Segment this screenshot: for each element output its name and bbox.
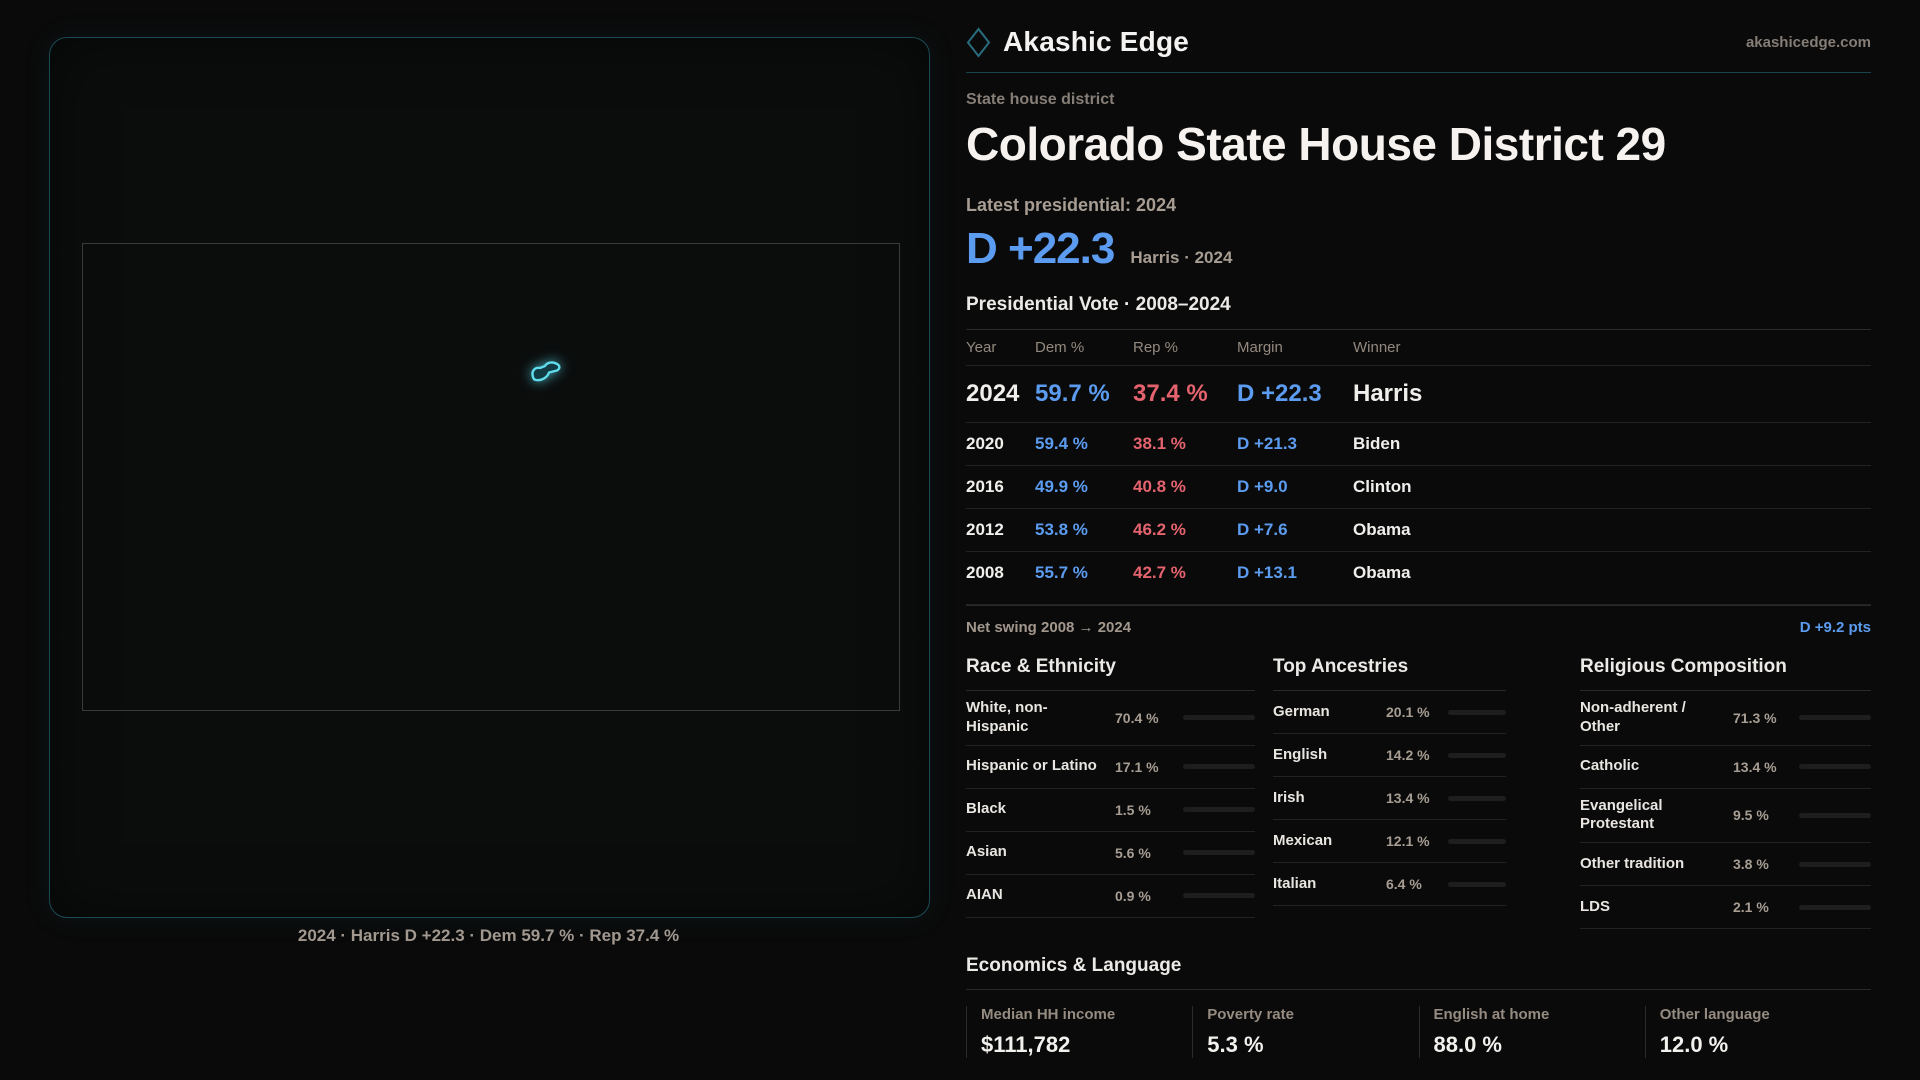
district-shape-icon	[528, 358, 568, 388]
demographic-row: Irish 13.4 %	[1273, 777, 1506, 820]
demographic-value: 70.4 %	[1115, 710, 1175, 726]
brand-name: Akashic Edge	[1003, 26, 1189, 58]
demographic-value: 17.1 %	[1115, 759, 1175, 775]
vote-rep: 40.8 %	[1133, 477, 1237, 497]
economics-title: Economics & Language	[966, 955, 1871, 990]
demographic-value: 12.1 %	[1386, 833, 1440, 849]
demographics-section: Race & Ethnicity White, non-Hispanic 70.…	[966, 656, 1871, 929]
vote-table-title: Presidential Vote · 2008–2024	[966, 294, 1871, 316]
demographic-value: 2.1 %	[1733, 899, 1791, 915]
stat-value: 5.3 %	[1207, 1032, 1418, 1058]
district-map-panel	[49, 37, 930, 918]
demographic-bar	[1448, 839, 1506, 844]
vote-table-row: 2024 59.7 % 37.4 % D +22.3 Harris	[966, 365, 1871, 422]
demographic-bar	[1448, 882, 1506, 887]
demographic-row: White, non-Hispanic 70.4 %	[966, 691, 1255, 746]
vote-margin: D +21.3	[1237, 434, 1353, 454]
vote-winner: Obama	[1353, 520, 1871, 540]
demographic-bar	[1183, 807, 1255, 812]
demographic-label: Other tradition	[1580, 855, 1725, 874]
vote-dem: 53.8 %	[1035, 520, 1133, 540]
demographic-value: 9.5 %	[1733, 807, 1791, 823]
race-ethnicity-list: White, non-Hispanic 70.4 % Hispanic or L…	[966, 691, 1255, 918]
vote-rep: 46.2 %	[1133, 520, 1237, 540]
economics-stats: Median HH income $111,782 Poverty rate 5…	[966, 1006, 1871, 1058]
vote-year: 2008	[966, 563, 1035, 583]
demographic-label: AIAN	[966, 886, 1107, 905]
demographic-value: 13.4 %	[1733, 759, 1791, 775]
demographic-row: Italian 6.4 %	[1273, 863, 1506, 906]
demographic-row: Black 1.5 %	[966, 789, 1255, 832]
demographic-label: Irish	[1273, 789, 1378, 808]
demographic-label: German	[1273, 703, 1378, 722]
demographic-row: English 14.2 %	[1273, 734, 1506, 777]
stat-card: English at home 88.0 %	[1419, 1006, 1645, 1058]
demographic-row: Evangelical Protestant 9.5 %	[1580, 789, 1871, 844]
religious-composition-title: Religious Composition	[1580, 656, 1871, 691]
demographic-bar	[1799, 715, 1871, 720]
vote-table-row: 2020 59.4 % 38.1 % D +21.3 Biden	[966, 422, 1871, 465]
vote-margin: D +22.3	[1237, 380, 1353, 408]
map-caption: 2024 · Harris D +22.3 · Dem 59.7 % · Rep…	[49, 926, 928, 946]
stat-label: Poverty rate	[1207, 1006, 1418, 1023]
demographic-label: Evangelical Protestant	[1580, 797, 1725, 835]
vote-margin: D +9.0	[1237, 477, 1353, 497]
vote-table-row: 2016 49.9 % 40.8 % D +9.0 Clinton	[966, 465, 1871, 508]
vote-dem: 55.7 %	[1035, 563, 1133, 583]
page-title: Colorado State House District 29	[966, 117, 1871, 171]
headline-margin-value: D +22.3	[966, 224, 1114, 274]
race-ethnicity-column: Race & Ethnicity White, non-Hispanic 70.…	[966, 656, 1255, 929]
headline-margin-row: D +22.3 Harris · 2024	[966, 224, 1871, 274]
demographic-label: Italian	[1273, 875, 1378, 894]
vote-table-row: 2008 55.7 % 42.7 % D +13.1 Obama	[966, 551, 1871, 594]
demographic-label: Hispanic or Latino	[966, 757, 1107, 776]
demographic-bar	[1183, 893, 1255, 898]
demographic-value: 0.9 %	[1115, 888, 1175, 904]
vote-margin: D +13.1	[1237, 563, 1353, 583]
district-kicker: State house district	[966, 91, 1871, 109]
demographic-bar	[1799, 905, 1871, 910]
diamond-icon	[966, 27, 991, 58]
state-bounding-box	[82, 243, 900, 711]
stat-label: Median HH income	[981, 1006, 1192, 1023]
demographic-label: LDS	[1580, 898, 1725, 917]
stat-value: $111,782	[981, 1032, 1192, 1058]
demographic-bar	[1448, 796, 1506, 801]
vote-year: 2016	[966, 477, 1035, 497]
vote-dem: 59.7 %	[1035, 380, 1133, 408]
demographic-label: Catholic	[1580, 757, 1725, 776]
race-ethnicity-title: Race & Ethnicity	[966, 656, 1255, 691]
vote-rep: 38.1 %	[1133, 434, 1237, 454]
top-ancestries-title: Top Ancestries	[1273, 656, 1506, 691]
demographic-row: Non-adherent / Other 71.3 %	[1580, 691, 1871, 746]
vote-table-header: Year Dem % Rep % Margin Winner	[966, 329, 1871, 365]
demographic-bar	[1799, 862, 1871, 867]
demographic-label: Asian	[966, 843, 1107, 862]
demographic-bar	[1183, 764, 1255, 769]
demographic-value: 13.4 %	[1386, 790, 1440, 806]
demographic-row: LDS 2.1 %	[1580, 886, 1871, 929]
top-ancestries-column: Top Ancestries German 20.1 % English 14.…	[1273, 656, 1506, 929]
vote-dem: 49.9 %	[1035, 477, 1133, 497]
col-dem: Dem %	[1035, 339, 1133, 356]
stat-label: Other language	[1660, 1006, 1871, 1023]
demographic-value: 71.3 %	[1733, 710, 1791, 726]
headline-margin-context: Harris · 2024	[1130, 248, 1232, 268]
col-winner: Winner	[1353, 339, 1871, 356]
demographic-label: Non-adherent / Other	[1580, 699, 1725, 737]
stat-value: 12.0 %	[1660, 1032, 1871, 1058]
demographic-row: Other tradition 3.8 %	[1580, 843, 1871, 886]
stat-label: English at home	[1434, 1006, 1645, 1023]
vote-year: 2012	[966, 520, 1035, 540]
header-divider	[966, 72, 1871, 73]
demographic-row: German 20.1 %	[1273, 691, 1506, 734]
vote-table-body: 2024 59.7 % 37.4 % D +22.3 Harris 2020 5…	[966, 365, 1871, 594]
stat-card: Median HH income $111,782	[966, 1006, 1192, 1058]
stat-value: 88.0 %	[1434, 1032, 1645, 1058]
vote-rep: 42.7 %	[1133, 563, 1237, 583]
demographic-value: 3.8 %	[1733, 856, 1791, 872]
demographic-label: English	[1273, 746, 1378, 765]
demographic-bar	[1448, 710, 1506, 715]
demographic-label: Black	[966, 800, 1107, 819]
latest-presidential-label: Latest presidential: 2024	[966, 195, 1871, 216]
demographic-row: Hispanic or Latino 17.1 %	[966, 746, 1255, 789]
net-swing-row: Net swing 2008 → 2024 D +9.2 pts	[966, 605, 1871, 640]
religious-composition-column: Religious Composition Non-adherent / Oth…	[1580, 656, 1871, 929]
demographic-row: AIAN 0.9 %	[966, 875, 1255, 918]
vote-dem: 59.4 %	[1035, 434, 1133, 454]
religious-composition-list: Non-adherent / Other 71.3 % Catholic 13.…	[1580, 691, 1871, 929]
vote-year: 2020	[966, 434, 1035, 454]
vote-winner: Obama	[1353, 563, 1871, 583]
vote-year: 2024	[966, 380, 1035, 408]
demographic-value: 1.5 %	[1115, 802, 1175, 818]
demographic-row: Catholic 13.4 %	[1580, 746, 1871, 789]
report-panel: Akashic Edge akashicedge.com State house…	[966, 0, 1871, 1080]
demographic-value: 5.6 %	[1115, 845, 1175, 861]
demographic-row: Mexican 12.1 %	[1273, 820, 1506, 863]
district-report-page: 2024 · Harris D +22.3 · Dem 59.7 % · Rep…	[0, 0, 1920, 1080]
top-ancestries-list: German 20.1 % English 14.2 % Irish 13.4 …	[1273, 691, 1506, 906]
demographic-bar	[1799, 813, 1871, 818]
demographic-row: Asian 5.6 %	[966, 832, 1255, 875]
col-margin: Margin	[1237, 339, 1353, 356]
demographic-label: White, non-Hispanic	[966, 699, 1107, 737]
brand-header: Akashic Edge akashicedge.com	[966, 26, 1871, 58]
demographic-bar	[1183, 715, 1255, 720]
demographic-bar	[1799, 764, 1871, 769]
vote-winner: Harris	[1353, 380, 1871, 408]
vote-margin: D +7.6	[1237, 520, 1353, 540]
demographic-value: 20.1 %	[1386, 704, 1440, 720]
demographic-bar	[1183, 850, 1255, 855]
stat-card: Poverty rate 5.3 %	[1192, 1006, 1418, 1058]
stat-card: Other language 12.0 %	[1645, 1006, 1871, 1058]
demographic-bar	[1448, 753, 1506, 758]
vote-rep: 37.4 %	[1133, 380, 1237, 408]
col-year: Year	[966, 339, 1035, 356]
col-rep: Rep %	[1133, 339, 1237, 356]
net-swing-label: Net swing 2008 → 2024	[966, 619, 1131, 636]
demographic-label: Mexican	[1273, 832, 1378, 851]
vote-winner: Clinton	[1353, 477, 1871, 497]
brand-site-link[interactable]: akashicedge.com	[1746, 34, 1871, 51]
vote-table-row: 2012 53.8 % 46.2 % D +7.6 Obama	[966, 508, 1871, 551]
demographic-value: 14.2 %	[1386, 747, 1440, 763]
demographic-value: 6.4 %	[1386, 876, 1440, 892]
vote-winner: Biden	[1353, 434, 1871, 454]
net-swing-value: D +9.2 pts	[1800, 619, 1871, 636]
